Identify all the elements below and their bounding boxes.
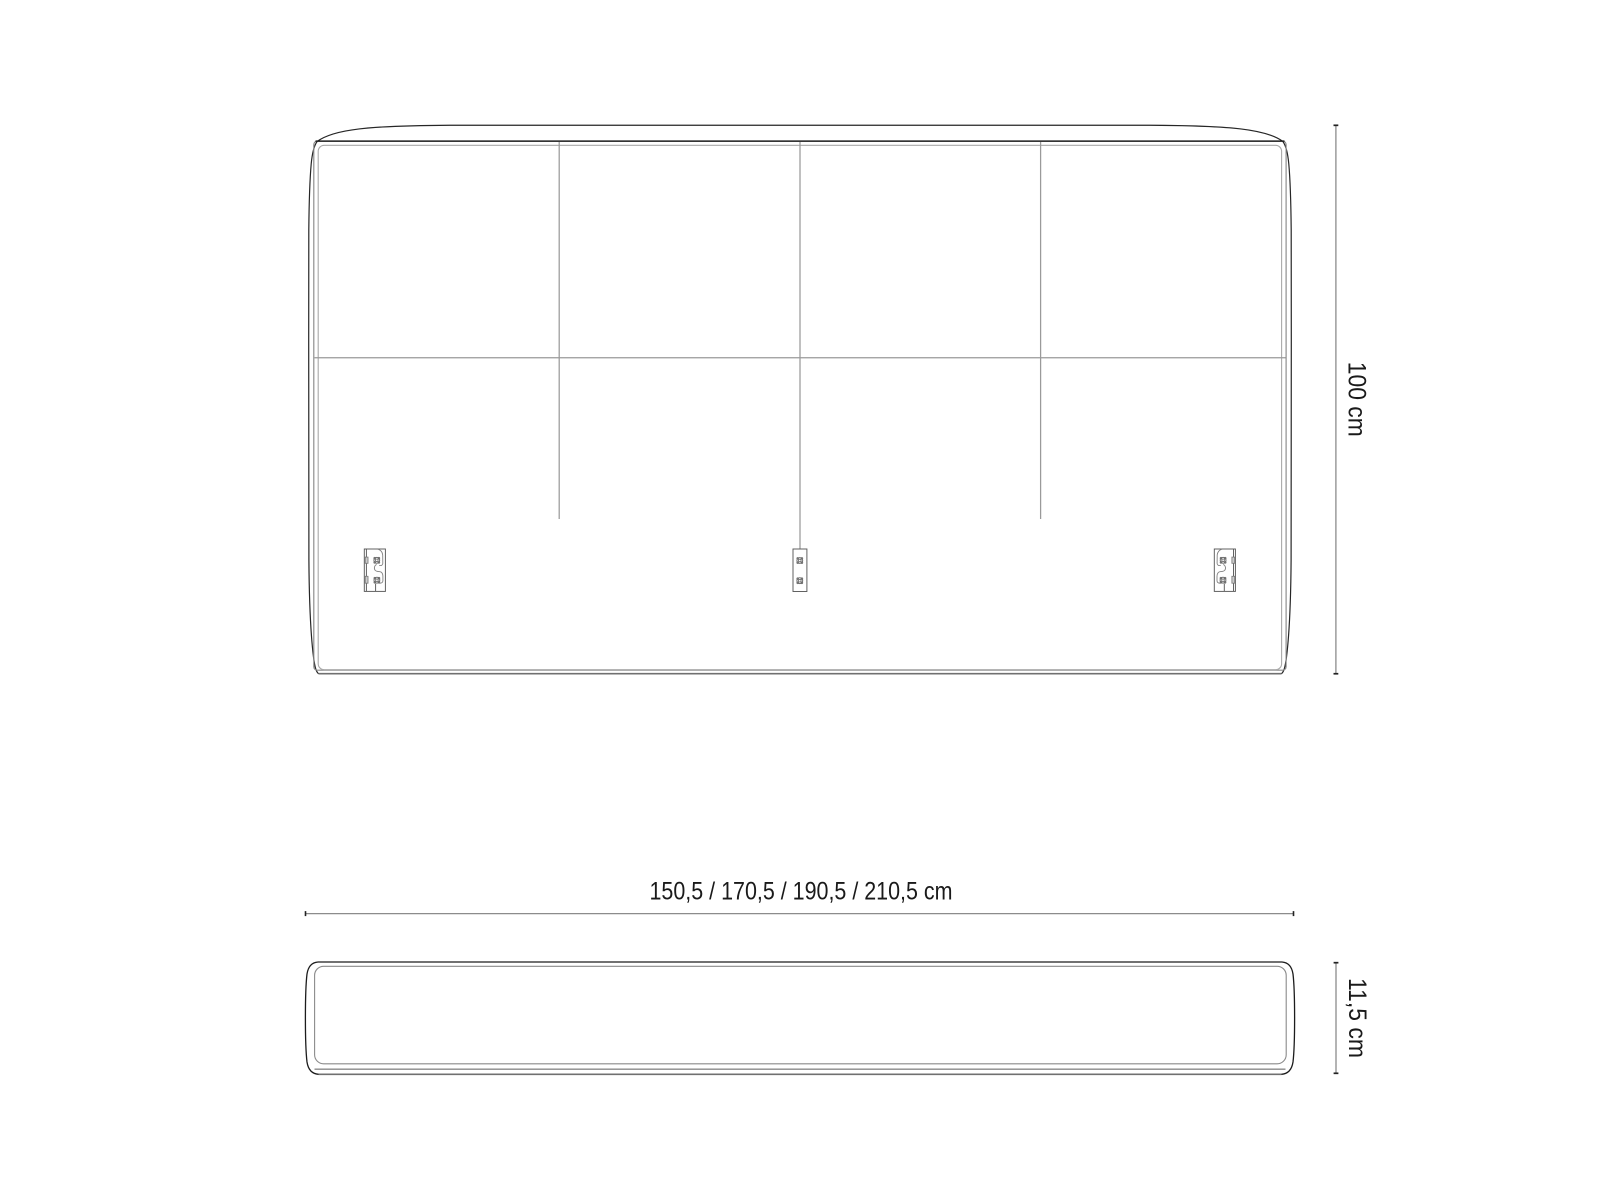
svg-text:11,5 cm: 11,5 cm [1343, 978, 1370, 1058]
svg-text:150,5 / 170,5 / 190,5 / 210,5: 150,5 / 170,5 / 190,5 / 210,5 cm [650, 878, 953, 905]
svg-text:100 cm: 100 cm [1343, 362, 1370, 437]
